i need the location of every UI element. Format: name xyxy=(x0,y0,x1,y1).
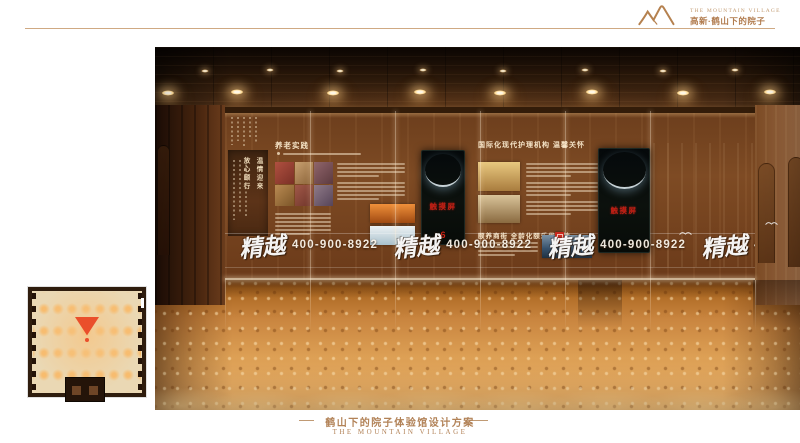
watermark-phone: 400-900-8922 xyxy=(754,239,755,251)
screen-reflection-arc xyxy=(603,152,646,189)
watermark-unit: 精越400-900-8922 xyxy=(701,228,755,262)
watermark-calligraphy: 精越 xyxy=(699,226,748,265)
touchscreen-label: 触摸屏 xyxy=(599,205,649,216)
carpet-floor xyxy=(155,272,800,410)
downlight-icon xyxy=(764,90,776,95)
mullion-floor-reflection xyxy=(650,280,651,332)
paragraph-lines xyxy=(526,163,598,179)
right-side-wall xyxy=(755,105,800,305)
touchscreen-label: 触摸屏 xyxy=(422,201,464,212)
watermark-phone: 400-900-8922 xyxy=(446,239,532,251)
section-title: 国际化现代护理机构 温馨关怀 xyxy=(478,140,585,150)
downlight-icon xyxy=(586,90,598,95)
mountain-peaks-icon xyxy=(636,2,686,33)
presentation-board: The Mountain Village 高新·鹤山下的院子 xyxy=(0,0,800,443)
paragraph-lines xyxy=(526,201,598,217)
section-subtitle-line xyxy=(283,153,361,155)
downlight-icon xyxy=(327,91,339,96)
view-point-dot xyxy=(85,338,89,342)
downlight-icon xyxy=(202,70,209,73)
downlight-icon xyxy=(732,69,739,72)
watermark-row: 精越400-900-8922 精越400-900-8922 精越400-900-… xyxy=(225,225,755,265)
screen-floor-reflection xyxy=(753,280,800,328)
brand-name-en: The Mountain Village xyxy=(690,8,781,14)
downlight-icon xyxy=(414,90,426,95)
watermark-calligraphy: 精越 xyxy=(545,226,594,265)
banner-slogan-col2: 放心颐行 xyxy=(240,157,250,223)
downlight-icon xyxy=(660,70,667,73)
glass-exhibit-wall: 温情迎来 放心颐行 养老实践 xyxy=(225,107,755,280)
plan-table xyxy=(65,377,105,402)
screen-floor-reflection xyxy=(578,280,622,328)
downlight-icon xyxy=(494,91,506,96)
watermark-phone: 400-900-8922 xyxy=(600,239,686,251)
left-side-wall xyxy=(155,105,225,305)
glass-text-decor xyxy=(231,117,257,147)
watermark-calligraphy: 精越 xyxy=(237,226,286,265)
mullion-floor-reflection xyxy=(755,280,756,332)
photo-thumbnail-lounge xyxy=(478,162,520,191)
plan-door-mark xyxy=(141,298,144,308)
mullion-floor-reflection xyxy=(310,280,311,332)
page-title-zh: 鹤山下的院子体验馆设计方案 xyxy=(0,414,800,429)
mullion-floor-reflection xyxy=(565,280,566,332)
brand-name-zh: 高新·鹤山下的院子 xyxy=(690,15,781,27)
downlight-icon xyxy=(582,69,589,72)
downlight-icon xyxy=(267,69,274,72)
banner-slogan: 温情迎来 放心颐行 xyxy=(237,157,263,223)
mullion-floor-reflection xyxy=(480,280,481,332)
downlight-icon xyxy=(337,70,344,73)
watermark-unit: 精越400-900-8922 xyxy=(239,228,393,262)
left-archway xyxy=(157,145,170,255)
hall-render: 温情迎来 放心颐行 养老实践 xyxy=(155,47,800,410)
photo-collage xyxy=(275,162,333,206)
downlight-icon xyxy=(677,91,689,96)
watermark-unit: 精越400-900-8922 xyxy=(393,228,547,262)
downlight-icon xyxy=(231,90,243,95)
mullion-floor-reflection xyxy=(395,280,396,332)
wood-ceiling xyxy=(155,47,800,112)
watermark-phone: 400-900-8922 xyxy=(292,239,378,251)
floor-plan-thumbnail xyxy=(28,287,146,397)
mullion-floor-reflection xyxy=(225,280,226,332)
glass-joint-line xyxy=(225,267,755,268)
wall-base-highlight xyxy=(225,278,755,280)
watermark-calligraphy: 精越 xyxy=(391,226,440,265)
screen-reflection-arc xyxy=(425,154,461,187)
downlight-icon xyxy=(500,70,507,73)
photo-thumbnail-dining xyxy=(478,195,520,223)
seagull-icon xyxy=(765,213,778,231)
exhibit-banner: 温情迎来 放心颐行 xyxy=(228,150,268,236)
downlight-icon xyxy=(162,91,174,96)
banner-slogan-col1: 温情迎来 xyxy=(253,157,263,223)
paragraph-lines xyxy=(526,182,598,198)
brand-logo-text: The Mountain Village 高新·鹤山下的院子 xyxy=(690,8,781,27)
brand-logo: The Mountain Village 高新·鹤山下的院子 xyxy=(636,2,781,33)
right-arch-niche xyxy=(788,157,800,267)
plan-wall-posts xyxy=(32,293,36,391)
downlight-icon xyxy=(420,69,427,72)
seagull-icon xyxy=(679,223,692,241)
page-title-en: THE MOUNTAIN VILLAGE xyxy=(0,428,800,436)
photo-thumbnail-lobby xyxy=(370,204,415,223)
section-title: 养老实践 xyxy=(275,140,309,151)
